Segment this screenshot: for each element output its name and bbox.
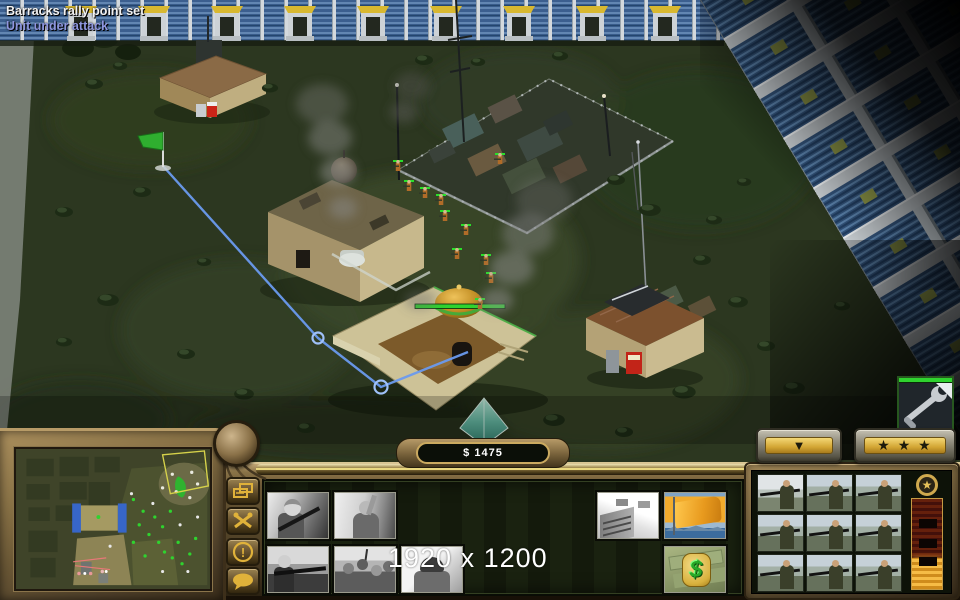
- chevron-down-icon: ▼: [793, 438, 806, 453]
- mob-leader-portrait: [335, 493, 395, 538]
- card-corner: [936, 383, 952, 399]
- rally-flag-button[interactable]: [664, 492, 726, 539]
- minimap[interactable]: [14, 447, 212, 591]
- frames-icon: [231, 481, 255, 501]
- exclamation-icon: !: [232, 541, 254, 563]
- collapse-bar-button[interactable]: ▼: [756, 428, 842, 463]
- selected-unit-portrait[interactable]: [855, 514, 902, 552]
- resolution-overlay: 1920 x 1200: [388, 543, 548, 574]
- set-rally-building-button[interactable]: [597, 492, 659, 539]
- cash-bounty-button[interactable]: $: [664, 546, 726, 593]
- selected-unit-portrait[interactable]: [806, 554, 853, 592]
- stars-icon: ★ ★ ★: [877, 437, 932, 454]
- train-angry-mob-button[interactable]: [334, 546, 396, 593]
- alert-button[interactable]: !: [226, 538, 260, 566]
- repair-tools-button[interactable]: [226, 507, 260, 535]
- orange-flag-icon: [665, 493, 725, 538]
- rank-star-icon: ★: [922, 479, 933, 491]
- selected-unit-portrait[interactable]: [757, 514, 804, 552]
- selected-unit-portrait[interactable]: [855, 554, 902, 592]
- message-under-attack: Unit under attack: [6, 19, 144, 34]
- selected-unit-portrait[interactable]: [757, 554, 804, 592]
- train-rpg-gunner-button[interactable]: [267, 546, 329, 593]
- rank-progress-bar: [911, 498, 943, 590]
- selected-unit-card[interactable]: [897, 376, 954, 432]
- control-bar-knob: [213, 420, 260, 467]
- dollar-icon: $: [665, 547, 725, 592]
- selected-unit-portrait[interactable]: [806, 474, 853, 512]
- rebel-portrait: [268, 493, 328, 538]
- selected-unit-portrait[interactable]: [855, 474, 902, 512]
- crowd-portrait: [335, 547, 395, 592]
- money-display: $ 1475: [416, 442, 550, 464]
- train-rebel-button[interactable]: [267, 492, 329, 539]
- event-messages: Barracks rally point set Unit under atta…: [6, 4, 144, 34]
- crossed-tools-icon: [231, 511, 255, 531]
- selected-unit-portrait[interactable]: [757, 474, 804, 512]
- rally-building-icon: [598, 493, 658, 538]
- rank-emblem: ★: [916, 474, 938, 496]
- chat-button[interactable]: [226, 567, 260, 595]
- selection-grid: [757, 474, 904, 592]
- structures-button[interactable]: [226, 477, 260, 505]
- svg-text:!: !: [241, 545, 245, 560]
- train-angry-mob-leader-button[interactable]: [334, 492, 396, 539]
- message-rally-point: Barracks rally point set: [6, 4, 144, 19]
- minimap-frame: [0, 428, 226, 600]
- game-screen: Barracks rally point set Unit under atta…: [0, 0, 960, 600]
- generals-powers-button[interactable]: ★ ★ ★: [854, 428, 956, 463]
- selected-unit-portrait[interactable]: [806, 514, 853, 552]
- gunner-portrait: [268, 547, 328, 592]
- speech-bubble-icon: [231, 571, 255, 591]
